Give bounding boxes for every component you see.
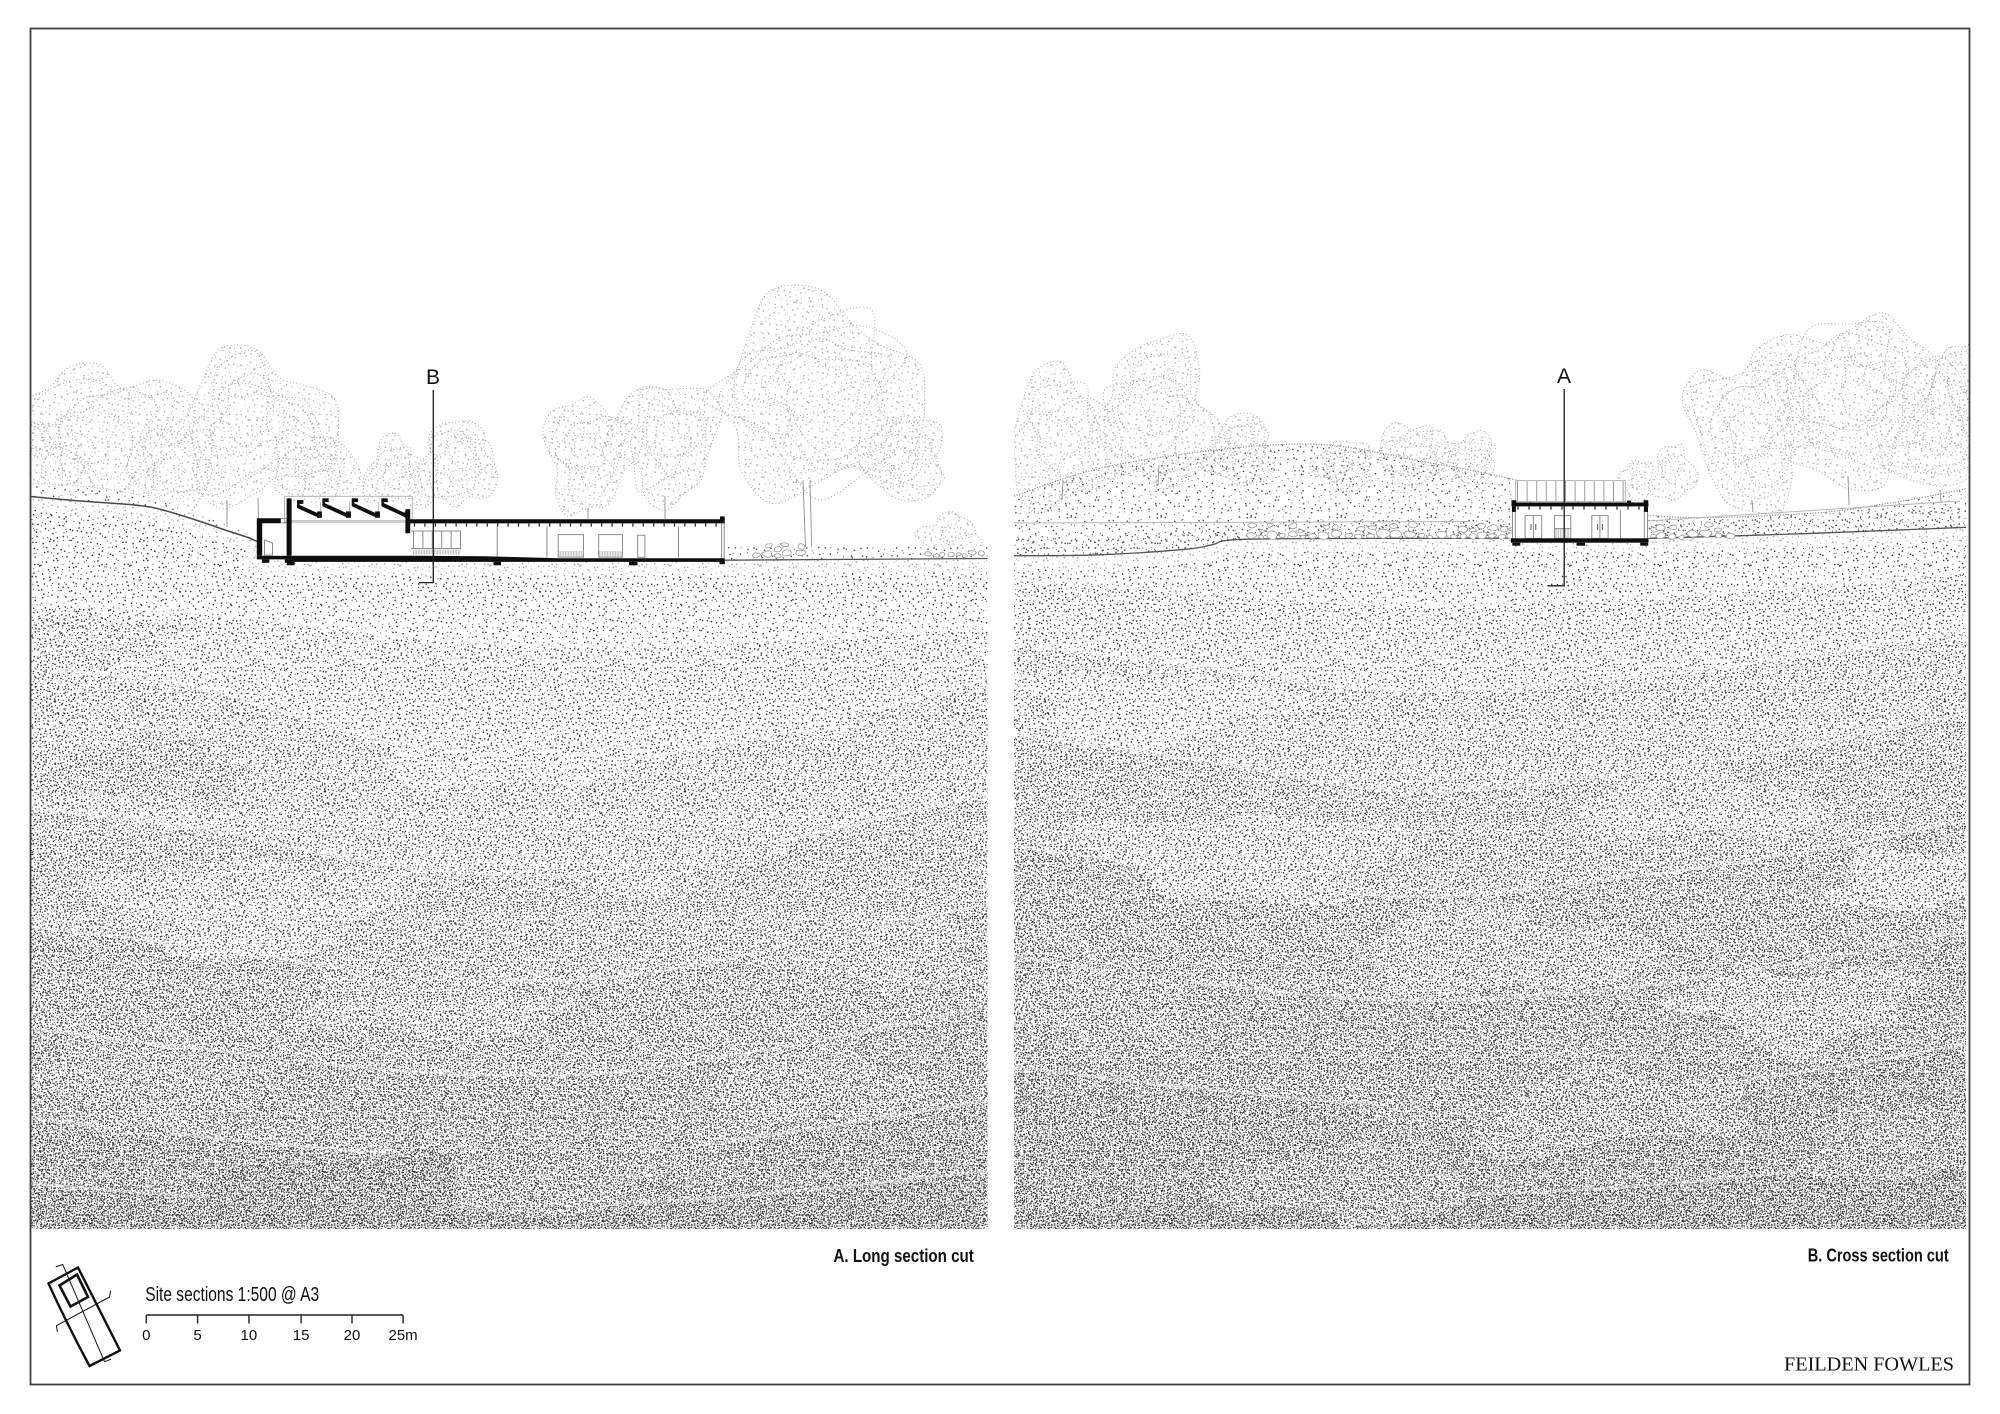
svg-text:A. Long section cut: A. Long section cut: [834, 1246, 974, 1266]
svg-text:0: 0: [142, 1327, 150, 1344]
svg-text:FEILDEN FOWLES: FEILDEN FOWLES: [1784, 1354, 1954, 1376]
svg-text:25m: 25m: [389, 1327, 418, 1344]
svg-text:Site sections 1:500 @ A3: Site sections 1:500 @ A3: [145, 1284, 319, 1306]
svg-text:B: B: [426, 366, 440, 389]
svg-text:15: 15: [293, 1327, 310, 1344]
svg-text:20: 20: [344, 1327, 361, 1344]
svg-text:B. Cross section cut: B. Cross section cut: [1808, 1246, 1949, 1266]
svg-text:10: 10: [241, 1327, 258, 1344]
svg-text:5: 5: [193, 1327, 201, 1344]
svg-text:A: A: [1557, 365, 1571, 388]
